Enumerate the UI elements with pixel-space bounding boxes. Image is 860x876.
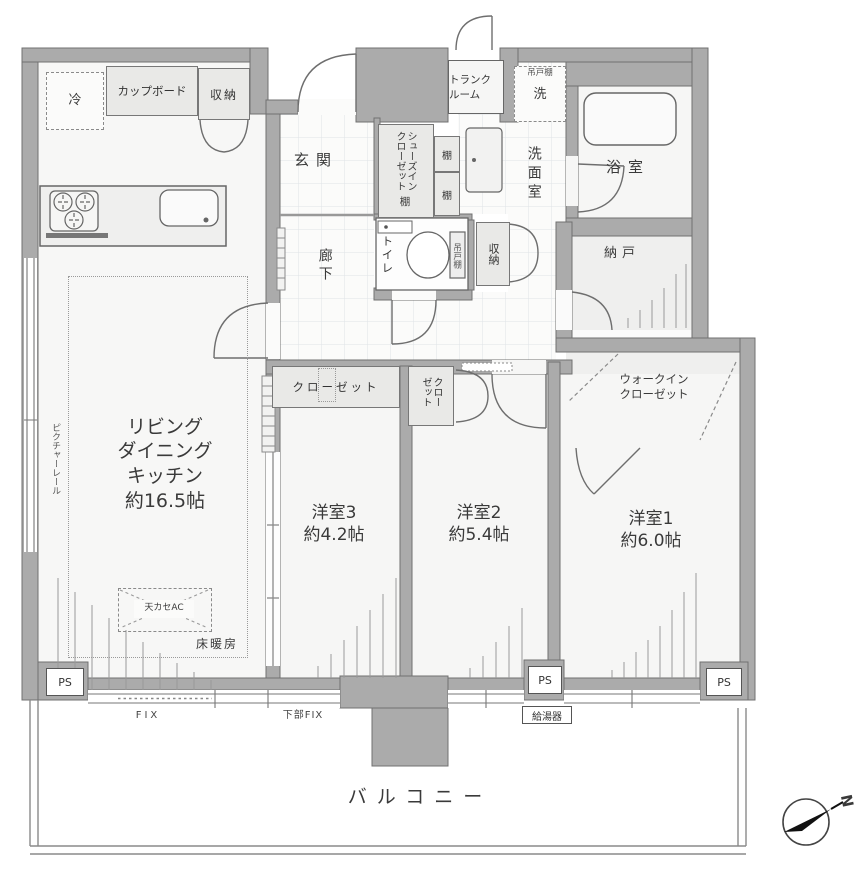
bathroom-label: 浴室 [596,156,660,180]
compass-north-label: N [835,789,857,812]
cupboard-label: カップボード [118,83,187,99]
fix-label: FIX [126,708,170,722]
ps-left: PS [46,668,84,696]
lower-fix-label: 下部FIX [272,708,334,722]
shelf-lower-label: 棚 [442,187,452,202]
closet-pole [318,368,336,402]
trunk-room: トランク ルーム [448,60,504,114]
hall-storage: 収納 [476,222,510,286]
vanity [466,128,502,192]
ps-right-label: PS [717,676,731,689]
shelf-lower: 棚 [434,172,460,216]
kitchen-storage-label: 収納 [210,86,238,103]
hanging-cupboard-laundry-label: 吊戸棚 [514,68,566,80]
water-heater-label: 給湯器 [532,708,562,723]
closet-bedroom2-label: クローゼット [420,377,442,415]
shoes-closet-shelf-label: 棚 [390,196,420,210]
toilet-label: トイレ [378,226,396,284]
cupboard: カップボード [106,66,198,116]
balcony-label: バルコニー [330,782,510,812]
entrance-label: 玄関 [286,148,346,174]
kitchen-counter [40,186,226,246]
bathtub [584,93,676,145]
floor-plan: 冷 カップボード 収納 トランク ルーム 吊戸棚 洗 シューズインクローゼット … [0,0,860,876]
bedroom2-label: 洋室2 約5.4帖 [420,498,538,550]
refrigerator-label: 冷 [46,72,104,130]
ps-center: PS [528,666,562,694]
floor-heating-label: 床暖房 [190,636,244,654]
ceiling-ac-label: 天カセAC [134,600,194,618]
washer-label: 洗 [514,82,566,108]
shelf-upper-label: 棚 [442,147,452,162]
shoes-in-closet-label: シューズインクローゼット [382,128,428,194]
water-heater: 給湯器 [522,706,572,724]
picture-rail-label: ピクチャーレール [46,404,62,514]
ps-center-label: PS [538,674,552,687]
ps-left-label: PS [58,676,72,689]
hall-storage-label: 収納 [487,243,499,265]
ps-right: PS [706,668,742,696]
bedroom1-label: 洋室1 約6.0帖 [592,504,710,556]
wall-hatch-strip [462,363,512,371]
kitchen-storage: 収納 [198,68,250,120]
corridor-label: 廊下 [314,236,334,296]
storeroom-label: 納戸 [594,244,650,264]
walk-in-closet-label: ウォークイン クローゼット [606,370,702,404]
closet-bedroom2: クローゼット [408,366,454,426]
compass-icon [783,799,843,845]
shelf-upper: 棚 [434,136,460,172]
washroom-label: 洗面室 [522,136,544,212]
trunk-room-label: トランク ルーム [449,72,503,102]
closet-bedroom3: クローゼット [272,366,400,408]
closet-bedroom3-label: クローゼット [293,379,380,395]
hanging-cupboard-toilet-label: 吊戸棚 [449,230,463,282]
bedroom3-label: 洋室3 約4.2帖 [288,498,380,550]
